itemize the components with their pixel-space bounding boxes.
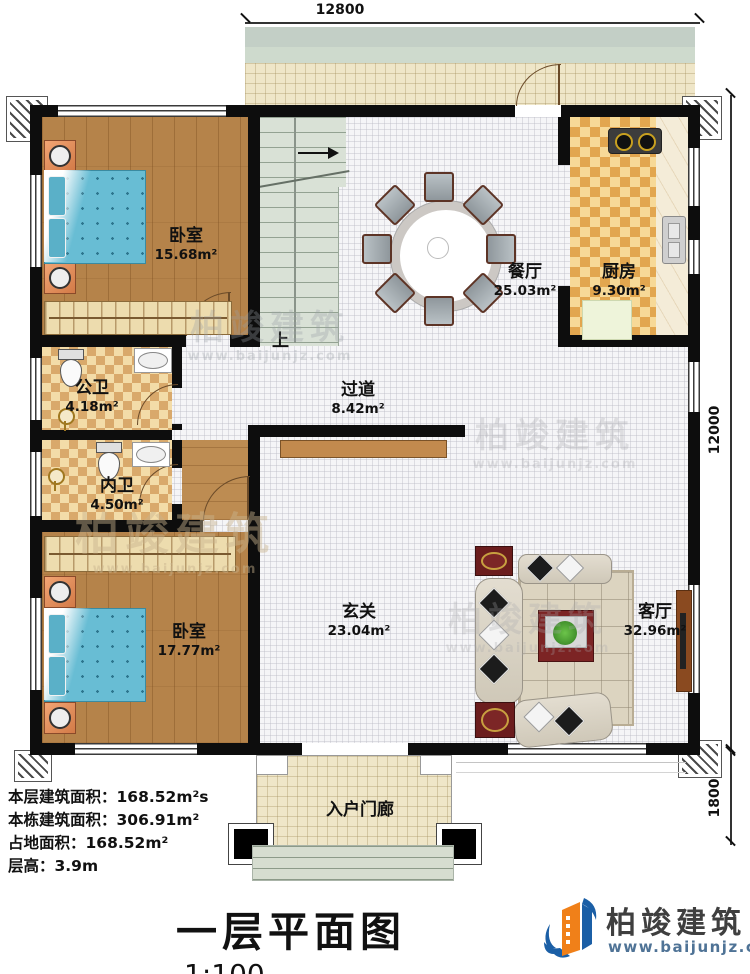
room-label-kitchen: 厨房 9.30m² [578, 262, 660, 300]
sink [134, 348, 172, 373]
dining-chair [424, 296, 454, 326]
wall-bath-right [172, 347, 182, 388]
pillow [48, 176, 66, 216]
room-label-corridor: 过道 8.42m² [318, 380, 398, 418]
floor-plan: 12800 12000 1800 上 [0, 0, 750, 974]
room-area: 15.68m² [148, 247, 224, 264]
room-area: 23.04m² [318, 623, 400, 640]
wall-bedroom1-bottom [230, 335, 260, 347]
shower-hose [54, 481, 56, 491]
wall-foyer-left [248, 425, 260, 743]
room-label-living: 客厅 32.96m² [614, 602, 696, 640]
room-label-porch: 入户门廊 [294, 800, 426, 821]
dining-table-center [427, 237, 449, 259]
rear-terrace-eave [245, 47, 695, 63]
room-area: 9.30m² [578, 283, 660, 300]
room-label-bath-public: 公卫 4.18m² [56, 378, 128, 416]
corridor-cabinet [280, 440, 447, 458]
room-area: 25.03m² [484, 283, 566, 300]
room-name: 餐厅 [484, 262, 566, 283]
info-line: 本层建筑面积：168.52m²s [8, 786, 208, 809]
room-area: 8.42m² [318, 401, 398, 418]
door-opening [302, 743, 408, 755]
stove [608, 128, 662, 154]
plant [553, 621, 577, 645]
stairs-arrow [298, 152, 330, 154]
side-table [475, 702, 515, 738]
window [30, 452, 42, 516]
room-name: 内卫 [80, 476, 154, 497]
sink [132, 442, 170, 467]
terrace-edge-line [456, 772, 686, 773]
kitchen-mat [582, 300, 632, 340]
nightstand [44, 140, 76, 172]
porch-pilaster [420, 755, 452, 775]
room-name: 过道 [318, 380, 398, 401]
window [30, 598, 42, 690]
room-name: 公卫 [56, 378, 128, 399]
room-name: 厨房 [578, 262, 660, 283]
room-name: 卧室 [148, 226, 224, 247]
wall-bedroom2-top [30, 520, 203, 532]
room-area: 32.96m² [614, 623, 696, 640]
shower-hose [64, 421, 66, 431]
side-table [475, 546, 513, 576]
window [75, 743, 197, 755]
shower-head [48, 468, 65, 485]
nightstand [44, 702, 76, 734]
nightstand [44, 262, 76, 294]
door-opening [515, 105, 561, 117]
window [688, 240, 700, 274]
pillow [48, 656, 66, 696]
dining-chair [362, 234, 392, 264]
page-title: 一层平面图 [176, 908, 406, 956]
info-block: 本层建筑面积：168.52m²s 本栋建筑面积：306.91m² 占地面积：16… [8, 786, 208, 878]
window [688, 148, 700, 206]
title-scale: 1:100 [184, 958, 265, 974]
wall-bath-divider [30, 430, 172, 440]
wall-bath-inner-right [172, 504, 182, 520]
dimension-right: 12000 [707, 400, 723, 460]
dining-chair [486, 234, 516, 264]
brand-url: www.baijunjz.com [608, 938, 750, 956]
room-area: 4.50m² [80, 497, 154, 514]
dimension-line-right [730, 95, 732, 755]
rear-terrace-floor [245, 63, 695, 107]
room-name: 玄关 [318, 602, 400, 623]
window [58, 105, 226, 117]
door-leaf [247, 476, 249, 520]
room-label-foyer: 玄关 23.04m² [318, 602, 400, 640]
window [30, 358, 42, 420]
info-line: 本栋建筑面积：306.91m² [8, 809, 208, 832]
wall-corridor-south [260, 425, 465, 437]
title-block: 一层平面图 1:100 [176, 898, 476, 974]
nightstand [44, 576, 76, 608]
room-area: 17.77m² [150, 643, 228, 660]
room-area: 4.18m² [56, 399, 128, 416]
kitchen-sink [662, 216, 686, 264]
brand-name: 柏竣建筑 [606, 898, 746, 942]
room-label-dining: 餐厅 25.03m² [484, 262, 566, 300]
info-line: 占地面积：168.52m² [8, 832, 208, 855]
stairs-rail [294, 117, 296, 343]
wall-kitchen-left [558, 117, 570, 165]
window [30, 175, 42, 267]
porch-pilaster [256, 755, 288, 775]
wardrobe [44, 536, 236, 572]
room-label-bath-inner: 内卫 4.50m² [80, 476, 154, 514]
brand-logo: 柏竣建筑 www.baijunjz.com [540, 896, 745, 966]
room-name: 入户门廊 [294, 800, 426, 821]
brand-logo-icon [540, 896, 602, 962]
window [688, 362, 700, 412]
coffee-table [538, 610, 594, 662]
pillow [48, 218, 66, 258]
dimension-line-bottom-right [730, 752, 732, 845]
wall-bedroom1-right [248, 117, 260, 347]
room-name: 客厅 [614, 602, 696, 623]
stairs-arrow-head [328, 147, 339, 159]
dimension-line-top [245, 22, 700, 24]
info-line: 层高：3.9m [8, 855, 208, 878]
porch-steps [252, 845, 454, 881]
wall-bedroom1-bottom [30, 335, 186, 347]
stairs-up-label: 上 [272, 326, 289, 351]
room-name: 卧室 [150, 622, 228, 643]
dimension-top: 12800 [300, 2, 380, 18]
room-label-bedroom1: 卧室 15.68m² [148, 226, 224, 264]
rear-terrace-eave [245, 27, 695, 48]
door-leaf [558, 64, 560, 105]
terrace-edge-line [456, 762, 686, 763]
wardrobe [44, 301, 232, 335]
room-label-bedroom2: 卧室 17.77m² [150, 622, 228, 660]
pillow [48, 614, 66, 654]
dining-chair [424, 172, 454, 202]
